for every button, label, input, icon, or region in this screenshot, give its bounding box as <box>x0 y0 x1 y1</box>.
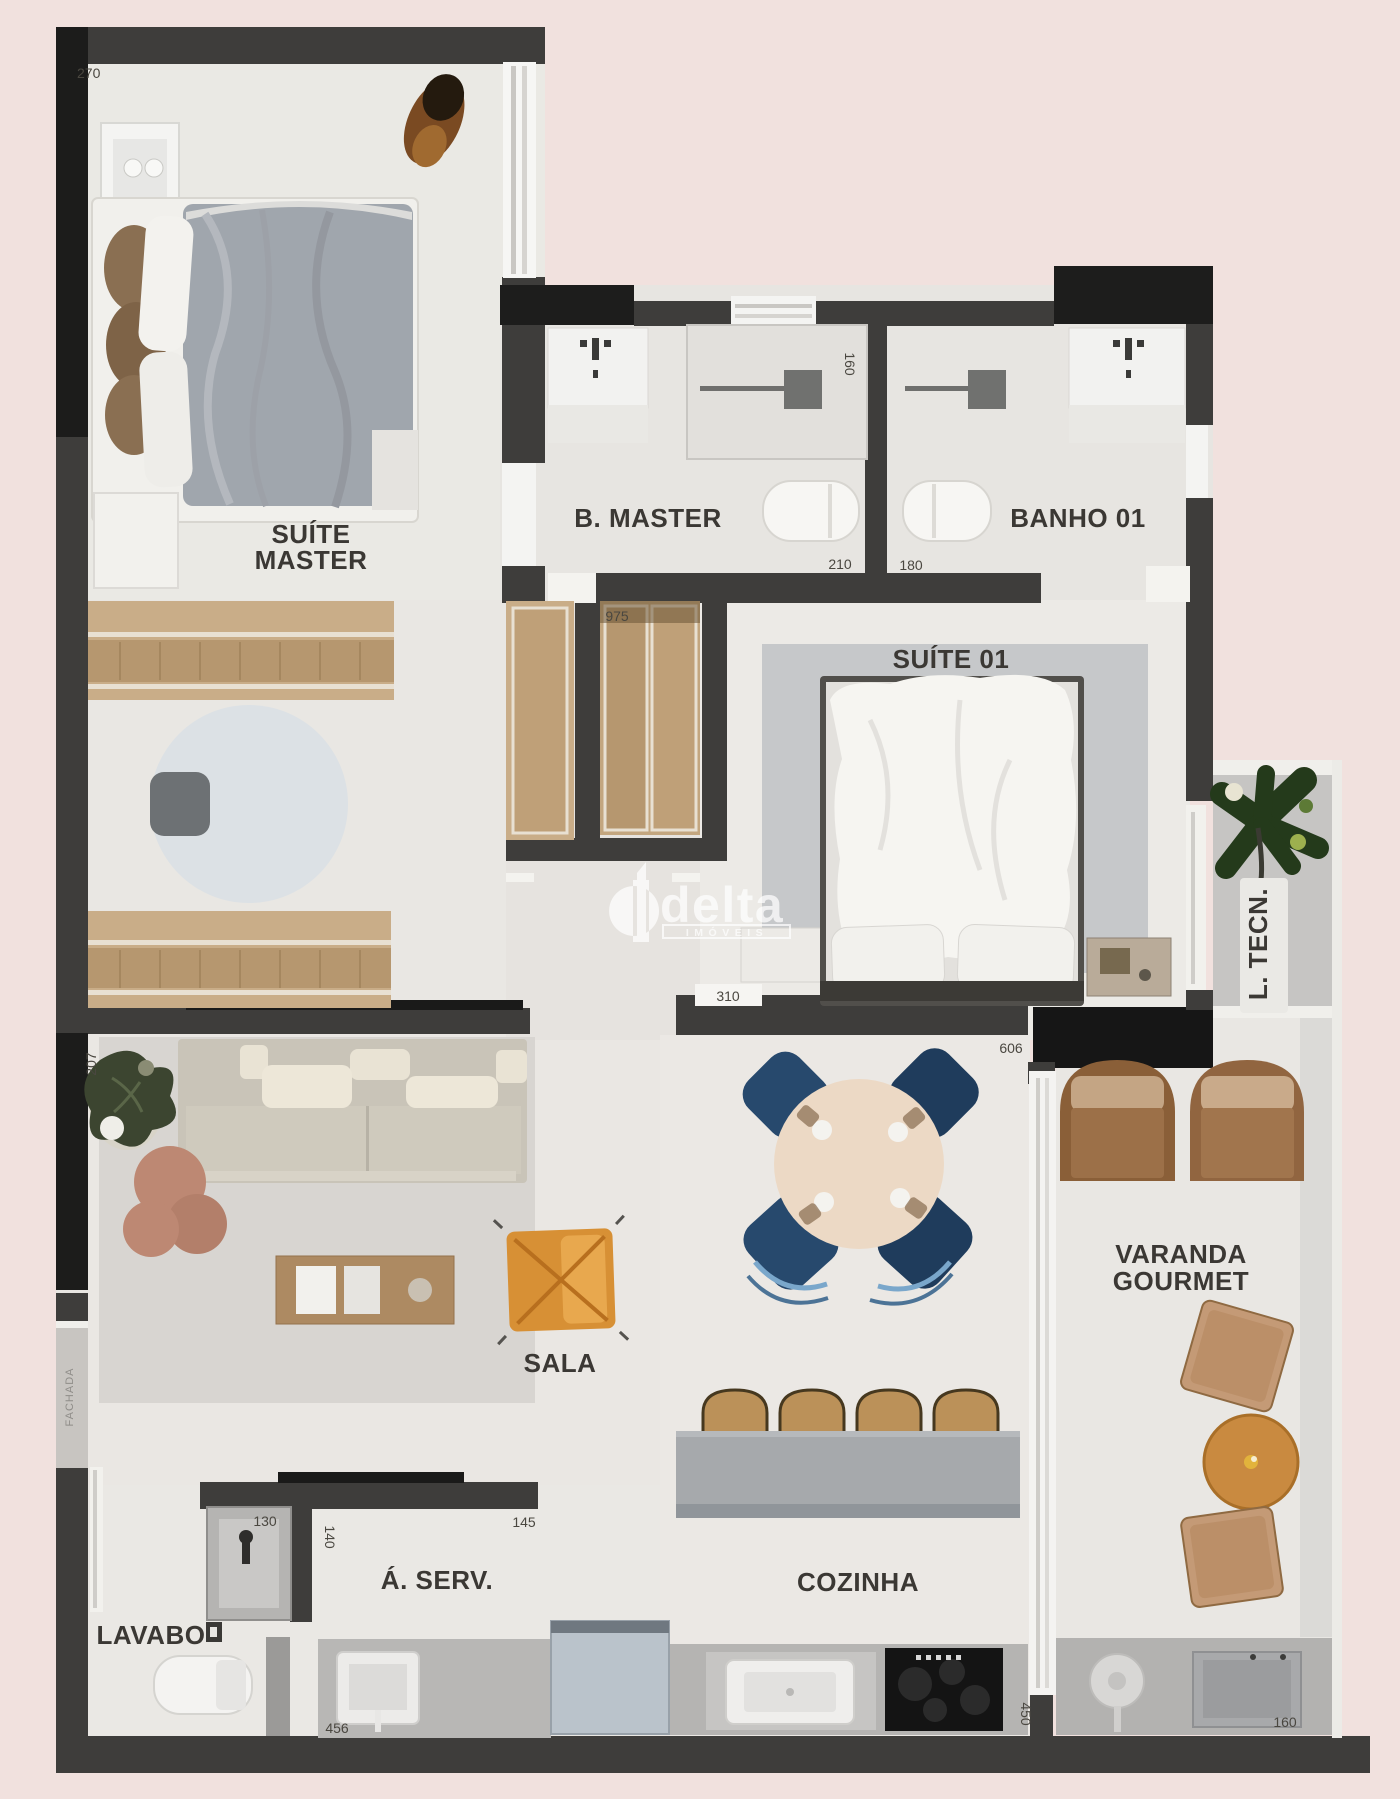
svg-text:GOURMET: GOURMET <box>1113 1266 1249 1296</box>
svg-text:SALA: SALA <box>524 1348 597 1378</box>
svg-text:450: 450 <box>1018 1702 1034 1726</box>
svg-text:145: 145 <box>512 1514 536 1530</box>
svg-text:L. TECN.: L. TECN. <box>1243 888 1273 1000</box>
svg-text:270: 270 <box>77 65 101 81</box>
svg-text:IMÓVEIS: IMÓVEIS <box>686 926 768 939</box>
svg-text:Á. SERV.: Á. SERV. <box>381 1565 493 1595</box>
svg-text:456: 456 <box>325 1720 349 1736</box>
svg-text:MASTER: MASTER <box>255 545 368 575</box>
svg-text:COZINHA: COZINHA <box>797 1567 919 1597</box>
svg-text:207: 207 <box>83 1052 99 1076</box>
svg-text:606: 606 <box>999 1040 1023 1056</box>
svg-text:BANHO 01: BANHO 01 <box>1010 503 1145 533</box>
svg-text:180: 180 <box>899 557 923 573</box>
svg-text:210: 210 <box>828 556 852 572</box>
svg-text:FACHADA: FACHADA <box>64 1368 76 1427</box>
svg-text:B. MASTER: B. MASTER <box>574 503 722 533</box>
svg-text:160: 160 <box>1273 1714 1297 1730</box>
svg-text:140: 140 <box>322 1525 338 1549</box>
svg-text:130: 130 <box>253 1513 277 1529</box>
svg-text:310: 310 <box>716 988 740 1004</box>
svg-text:VARANDA: VARANDA <box>1115 1239 1247 1269</box>
svg-text:975: 975 <box>605 608 629 624</box>
svg-text:LAVABO: LAVABO <box>97 1620 206 1650</box>
svg-text:160: 160 <box>842 352 858 376</box>
svg-text:SUÍTE 01: SUÍTE 01 <box>893 644 1010 674</box>
